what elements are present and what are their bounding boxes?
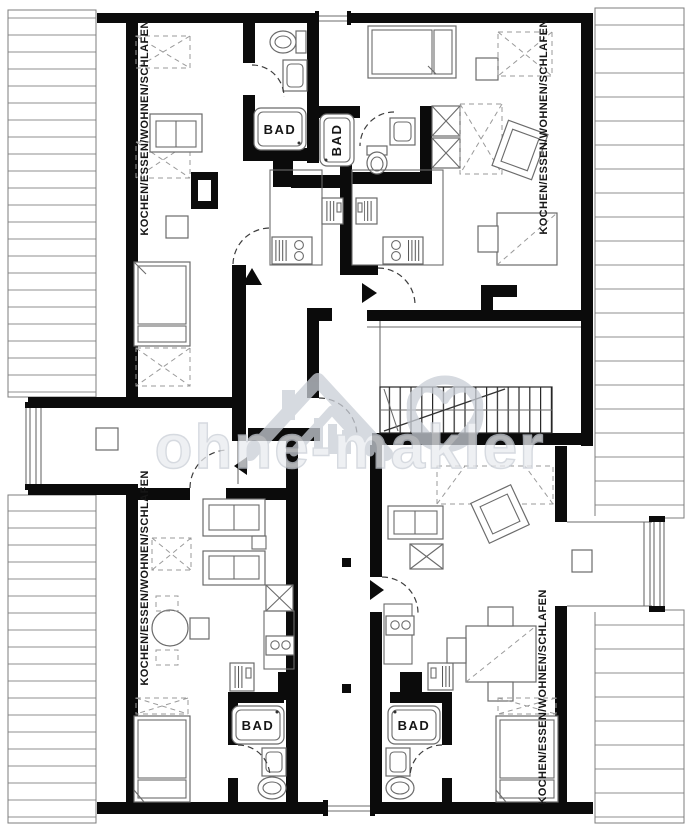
- watermark-text: ohne-makler: [155, 413, 546, 482]
- sink-unit: [322, 198, 343, 224]
- toilet: [258, 777, 286, 799]
- bad-label-top-center: BAD: [329, 124, 344, 157]
- unit-label-top-left: KOCHEN/ESSEN/WOHNEN/SCHLAFEN: [139, 20, 151, 235]
- unit-label-bottom-right: KOCHEN/ESSEN/WOHNEN/SCHLAFEN: [537, 589, 549, 804]
- entrance-arrow-top-right: [362, 283, 377, 303]
- bed: [368, 26, 456, 78]
- wardrobe-crossed: [410, 544, 443, 569]
- side-table: [572, 550, 592, 572]
- window-bottom-corridor: [323, 800, 375, 816]
- wardrobe-dashed: [136, 348, 190, 386]
- wardrobe-dashed: [136, 698, 188, 714]
- roof-hatch-left-lower: [8, 495, 96, 823]
- stove: [383, 237, 423, 264]
- shaft: [400, 672, 422, 700]
- chair: [447, 638, 466, 663]
- bad-label-bottom-right: BAD: [398, 718, 431, 733]
- bed: [134, 716, 190, 802]
- wardrobe-crossed: [266, 585, 293, 611]
- chair: [478, 226, 498, 252]
- door-arc: [252, 65, 284, 97]
- side-table: [96, 428, 118, 450]
- wall-stair-top: [367, 310, 593, 321]
- side-table: [166, 216, 188, 238]
- wall-segment: [28, 484, 138, 495]
- armchair: [471, 485, 529, 543]
- stove: [386, 616, 414, 635]
- dining-table-round: [152, 596, 209, 665]
- chair-dashed: [156, 650, 178, 665]
- chimney: [191, 172, 218, 209]
- wall-right-mid: [555, 446, 567, 522]
- door-arc: [382, 577, 418, 613]
- door-arc: [410, 745, 442, 777]
- sofa: [203, 551, 265, 585]
- side-table: [476, 58, 498, 80]
- unit-label-bottom-left: KOCHEN/ESSEN/WOHNEN/SCHLAFEN: [139, 470, 151, 685]
- unit-label-top-right: KOCHEN/ESSEN/WOHNEN/SCHLAFEN: [538, 19, 550, 234]
- door-arc: [360, 112, 394, 146]
- roof-hatch-left-upper: [8, 10, 96, 397]
- window-top-corridor: [315, 11, 351, 25]
- wardrobe-crossed: [432, 106, 460, 136]
- sink-unit: [356, 198, 377, 224]
- stove: [272, 237, 312, 264]
- door-arc: [233, 228, 270, 264]
- floor-plan-drawing: ohne-makler KOCHEN/ESSEN/WOHNEN/SCHLAFEN…: [0, 0, 699, 830]
- sink-unit: [428, 663, 453, 690]
- sink: [390, 118, 415, 145]
- bed: [134, 262, 190, 346]
- right-dormer: [567, 516, 665, 612]
- wall-right-upper: [581, 13, 593, 446]
- chair: [488, 607, 513, 626]
- sink-unit: [230, 663, 254, 691]
- dining-table: [447, 607, 536, 701]
- coffee-table: [252, 536, 266, 549]
- sink: [283, 60, 307, 91]
- shaft: [278, 672, 298, 700]
- bad-label-top-left: BAD: [264, 122, 297, 137]
- wardrobe-dashed: [152, 538, 191, 570]
- roof-hatch-right-upper: [595, 8, 684, 518]
- column: [342, 684, 351, 693]
- chair: [190, 618, 209, 639]
- roof-hatch-right-lower: [595, 610, 684, 823]
- floor-plan-page: ohne-makler KOCHEN/ESSEN/WOHNEN/SCHLAFEN…: [0, 0, 699, 830]
- entrance-arrow-bottom-right: [370, 580, 384, 600]
- sink: [386, 748, 410, 776]
- toilet: [270, 31, 306, 53]
- chair-dashed: [156, 596, 178, 611]
- bad-label-bottom-left: BAD: [242, 718, 275, 733]
- column: [342, 558, 351, 567]
- door-arc: [378, 268, 415, 305]
- wardrobe-crossed: [432, 138, 460, 168]
- toilet: [386, 777, 414, 799]
- sofa: [150, 114, 202, 152]
- kitchenette: [352, 170, 443, 265]
- sofa: [388, 506, 443, 539]
- sofa: [203, 499, 265, 536]
- stove: [266, 636, 294, 655]
